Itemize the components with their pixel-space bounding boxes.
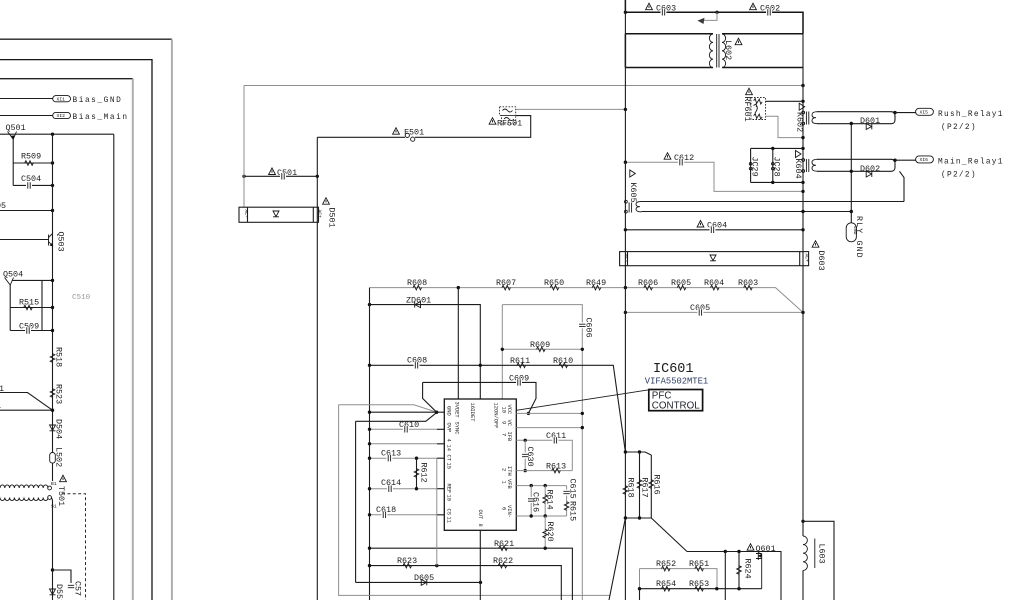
svg-text:C606: C606 [584, 318, 594, 338]
svg-text:R611: R611 [510, 356, 530, 366]
svg-text:9: 9 [501, 421, 507, 424]
svg-text:CONTROL: CONTROL [652, 401, 700, 412]
svg-text:D601: D601 [860, 116, 880, 126]
svg-text:T501: T501 [56, 486, 66, 506]
svg-text:D552: D552 [54, 584, 64, 600]
svg-text:REF: REF [446, 484, 452, 494]
svg-text:R620: R620 [545, 522, 555, 542]
svg-text:K604: K604 [793, 159, 803, 179]
svg-text:RF501: RF501 [497, 118, 522, 128]
svg-text:12: 12 [493, 403, 499, 409]
svg-text:R609: R609 [530, 340, 550, 350]
svg-text:ZD601: ZD601 [406, 295, 431, 305]
svg-text:AC-: AC- [623, 254, 629, 263]
svg-text:L602: L602 [723, 40, 733, 60]
svg-text:Rush_Relay1: Rush_Relay1 [938, 111, 1004, 119]
svg-text:AC+: AC+ [803, 254, 809, 263]
svg-text:OVP: OVP [446, 423, 452, 433]
svg-text:1: 1 [501, 481, 507, 484]
svg-text:SYNC: SYNC [454, 422, 460, 435]
svg-text:3VDET: 3VDET [454, 402, 460, 419]
svg-text:R621: R621 [494, 539, 514, 549]
svg-text:2: 2 [501, 468, 507, 471]
svg-text:R618: R618 [625, 478, 635, 498]
svg-text:15: 15 [446, 463, 452, 469]
svg-text:L502: L502 [54, 447, 64, 467]
svg-text:K605: K605 [628, 183, 638, 203]
svg-text:4: 4 [0, 402, 1, 412]
svg-text:R605: R605 [671, 278, 691, 288]
svg-text:C615: C615 [568, 479, 578, 499]
svg-text:R607: R607 [496, 278, 516, 288]
svg-text:XI5: XI5 [920, 110, 929, 116]
svg-text:C610: C610 [399, 420, 419, 430]
svg-text:XI6: XI6 [920, 157, 929, 163]
svg-text:Bias_Main: Bias_Main [73, 114, 129, 122]
svg-text:(P2/2): (P2/2) [941, 124, 977, 132]
svg-text:AC-: AC- [243, 210, 249, 219]
svg-text:L603: L603 [817, 544, 827, 564]
svg-text:(P2/2): (P2/2) [941, 171, 977, 179]
svg-text:GND: GND [446, 406, 452, 416]
svg-text:RF601: RF601 [742, 97, 752, 122]
svg-text:R616: R616 [651, 475, 661, 495]
svg-text:XI1: XI1 [57, 96, 66, 102]
svg-text:D501: D501 [327, 208, 337, 228]
svg-text:R509: R509 [21, 152, 41, 162]
svg-text:Q501: Q501 [6, 123, 26, 133]
svg-text:CS: CS [446, 509, 452, 515]
svg-text:R653: R653 [689, 579, 709, 589]
svg-text:CT: CT [446, 455, 452, 462]
svg-text:R650: R650 [544, 278, 564, 288]
svg-text:C616: C616 [531, 492, 541, 512]
svg-text:R612: R612 [419, 463, 429, 483]
svg-text:IDET: IDET [469, 409, 475, 423]
svg-text:C612: C612 [674, 153, 694, 163]
svg-text:C57: C57 [73, 581, 83, 596]
svg-text:10: 10 [446, 495, 452, 501]
svg-text:6: 6 [501, 507, 507, 510]
svg-text:11: 11 [446, 517, 452, 523]
svg-text:C510: C510 [72, 294, 91, 302]
svg-text:R523: R523 [54, 384, 64, 404]
svg-text:R604: R604 [704, 278, 724, 288]
svg-text:D504: D504 [54, 419, 64, 439]
svg-text:R649: R649 [586, 278, 606, 288]
svg-text:R610: R610 [553, 356, 573, 366]
svg-text:C630: C630 [525, 447, 535, 467]
svg-text:Bias_GND: Bias_GND [73, 97, 123, 105]
svg-text:R615: R615 [568, 501, 578, 521]
svg-text:RLY GND: RLY GND [854, 216, 863, 259]
svg-text:Q503: Q503 [56, 232, 66, 252]
svg-text:Main_Relay1: Main_Relay1 [938, 159, 1004, 167]
svg-text:R614: R614 [545, 490, 555, 510]
svg-text:R617: R617 [639, 478, 649, 498]
svg-text:05: 05 [0, 201, 6, 211]
svg-text:XI2: XI2 [57, 113, 66, 119]
svg-text:7: 7 [501, 433, 507, 436]
svg-text:B1: B1 [51, 481, 57, 487]
svg-text:IC601: IC601 [653, 362, 694, 377]
svg-text:JC29: JC29 [749, 157, 759, 177]
svg-text:4: 4 [446, 439, 452, 442]
svg-text:R623: R623 [397, 556, 417, 566]
svg-text:R518: R518 [54, 347, 64, 367]
svg-text:JC28: JC28 [772, 157, 782, 177]
svg-text:D603: D603 [816, 251, 826, 271]
svg-text:ON/OFF: ON/OFF [493, 409, 499, 428]
svg-text:S1: S1 [51, 504, 57, 510]
svg-text:F501: F501 [404, 128, 424, 138]
svg-text:OUT: OUT [477, 510, 483, 520]
svg-text:R606: R606 [638, 278, 658, 288]
svg-text:14: 14 [446, 445, 452, 451]
svg-text:8: 8 [477, 524, 483, 527]
svg-text:R651: R651 [689, 559, 709, 569]
svg-text:R624: R624 [742, 559, 752, 579]
svg-text:10: 10 [501, 407, 507, 413]
svg-text:D602: D602 [860, 164, 880, 174]
svg-text:VIFA5502MTE1: VIFA5502MTE1 [645, 377, 708, 387]
svg-text:R608: R608 [407, 278, 427, 288]
